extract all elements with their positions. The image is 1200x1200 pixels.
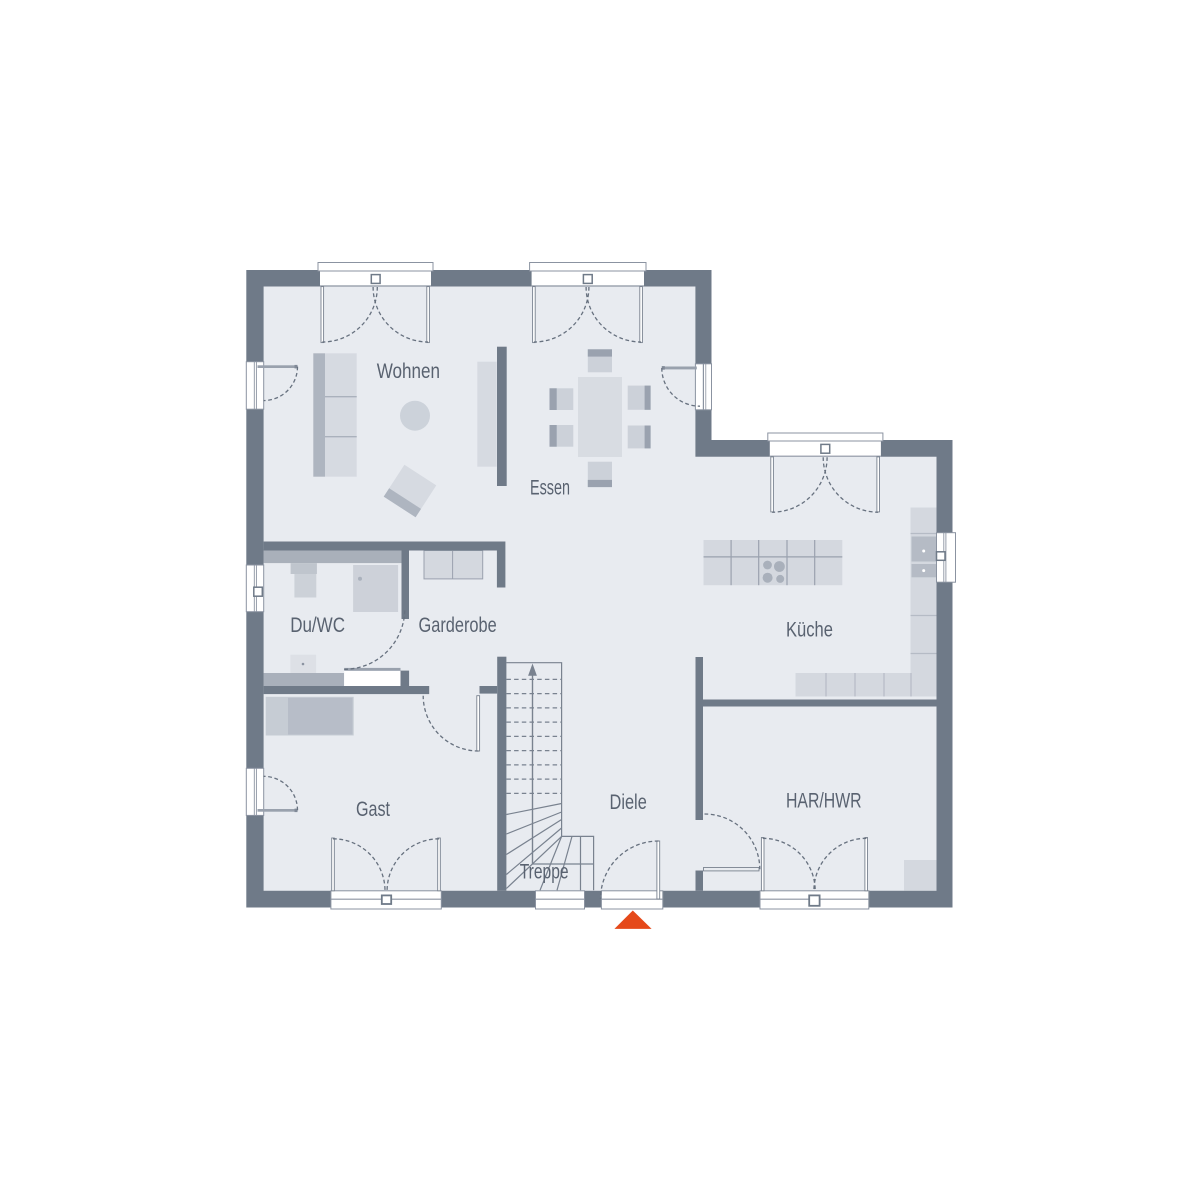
svg-text:Essen: Essen (530, 476, 570, 499)
svg-text:Küche: Küche (786, 619, 833, 642)
svg-text:HAR/HWR: HAR/HWR (786, 790, 862, 813)
svg-text:Wohnen: Wohnen (377, 360, 440, 383)
svg-text:Diele: Diele (610, 791, 647, 814)
svg-text:Du/WC: Du/WC (290, 614, 345, 637)
svg-text:Garderobe: Garderobe (419, 614, 497, 637)
svg-text:Gast: Gast (356, 798, 390, 821)
svg-text:Treppe: Treppe (520, 860, 569, 883)
